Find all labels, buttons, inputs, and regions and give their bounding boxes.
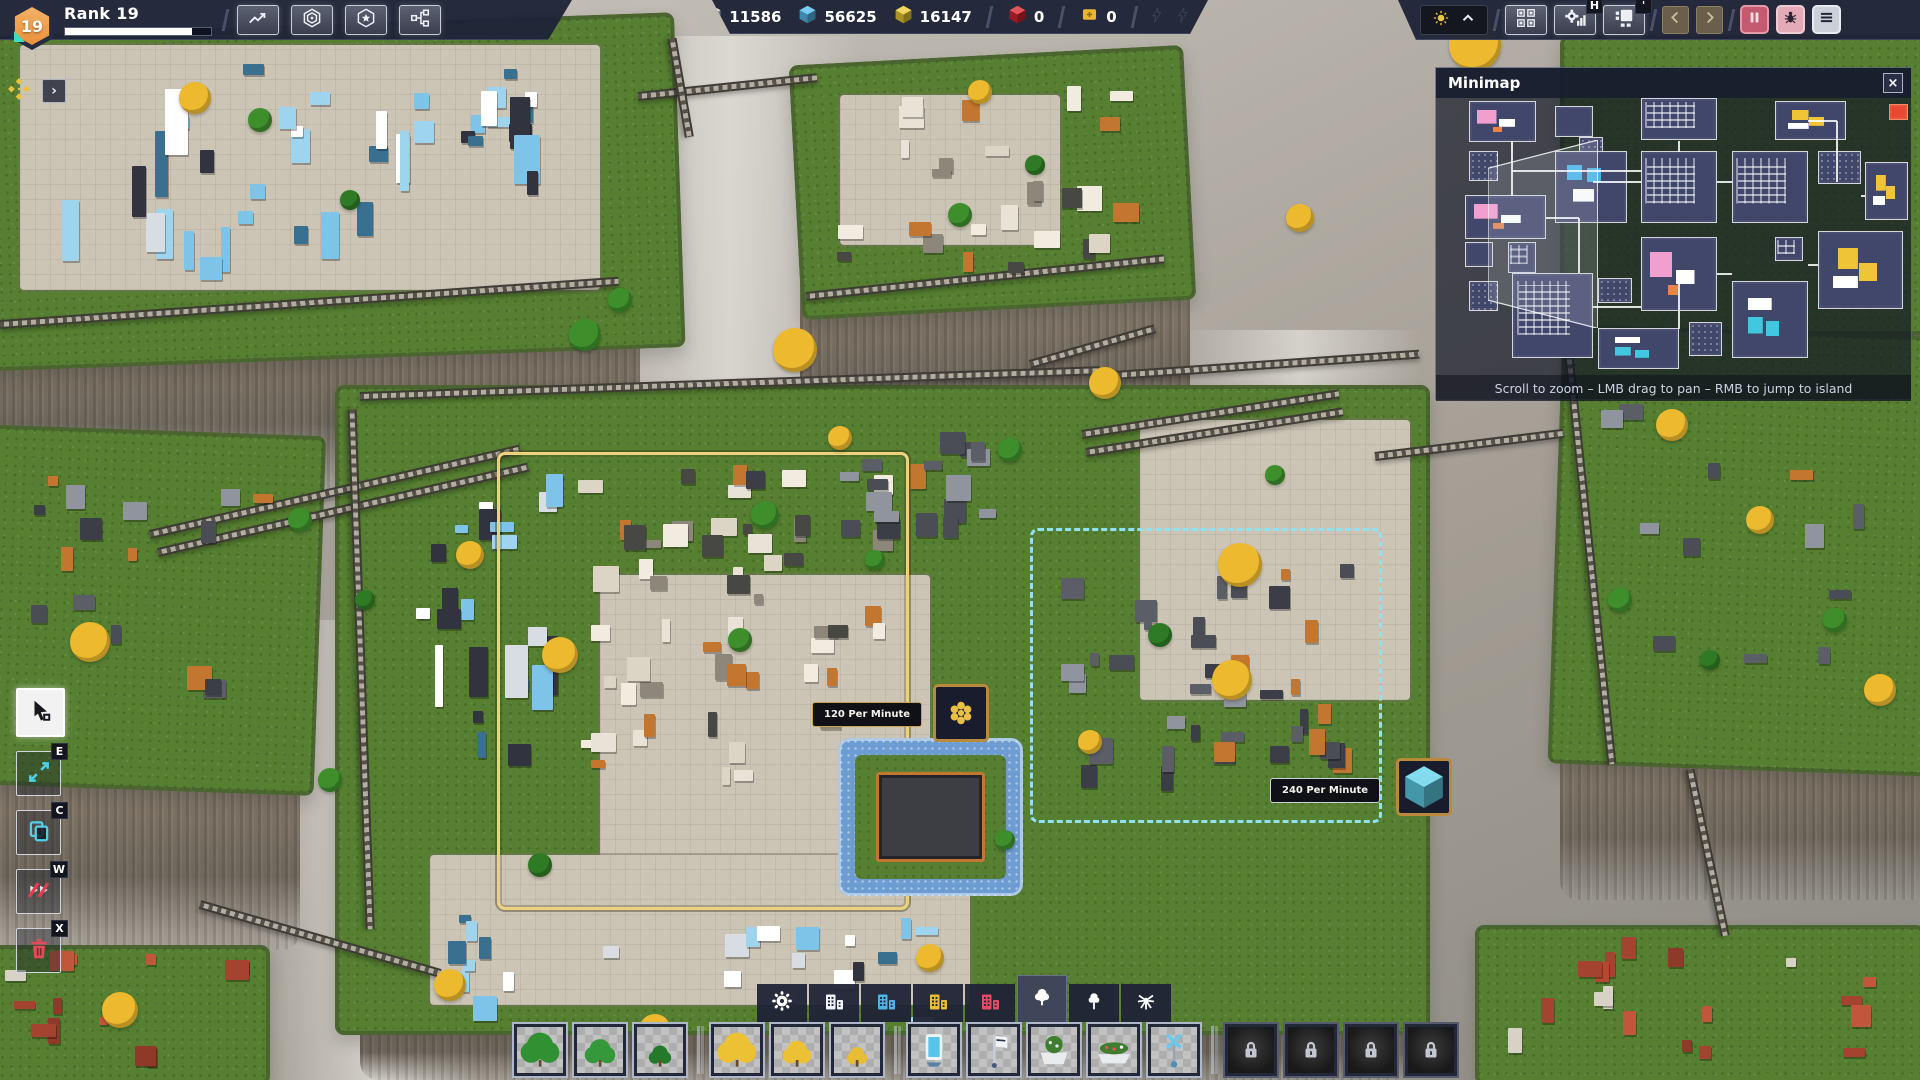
item-tree-green-medium[interactable] [572, 1022, 628, 1078]
slot-preview [1228, 1027, 1274, 1073]
menu-icon [1818, 9, 1835, 30]
pause-button[interactable] [1740, 5, 1769, 34]
factory-building [796, 927, 820, 950]
item-group-divider [894, 1026, 897, 1074]
rank-progress-bar [64, 27, 212, 36]
layer-view-button[interactable]: ' [1603, 5, 1645, 35]
factory-building [1699, 1046, 1711, 1059]
tab-general[interactable] [757, 984, 807, 1022]
minimap-island[interactable] [1598, 328, 1679, 370]
slot-preview [517, 1027, 563, 1073]
tree [456, 541, 484, 569]
game-window: 120 Per Minute240 Per Minute 19 Rank 19 … [0, 0, 1920, 1080]
delete-tool[interactable]: X [16, 928, 61, 973]
factory-building [603, 946, 619, 958]
factory-building [1008, 262, 1023, 273]
tab-buildings-blue[interactable] [861, 984, 911, 1022]
hotkey-badge: E [51, 743, 68, 760]
factory-building [1594, 992, 1612, 1006]
prev-island-button[interactable] [1662, 6, 1689, 34]
factory-building [253, 494, 273, 503]
minimap-island[interactable] [1598, 278, 1631, 303]
edit-toolbar: ECWX [16, 688, 65, 973]
factory-building [1621, 937, 1637, 959]
factory-building [146, 954, 156, 965]
factory-building [1033, 181, 1043, 201]
factory-building [448, 941, 466, 964]
moat-structure [876, 772, 985, 862]
item-locked-2[interactable] [1283, 1022, 1339, 1078]
slot-preview [1348, 1027, 1394, 1073]
tree [528, 853, 552, 877]
tree [1746, 506, 1774, 534]
divider [1493, 9, 1501, 31]
feedback-button[interactable] [1776, 5, 1805, 34]
tree [1608, 588, 1632, 612]
slot-preview [834, 1027, 880, 1073]
tree [1089, 367, 1121, 399]
minimap-island[interactable] [1818, 231, 1904, 309]
select-tool[interactable] [16, 688, 65, 737]
factory-building [1062, 188, 1082, 209]
tree [773, 328, 817, 372]
factory-building [916, 513, 937, 537]
tree [751, 501, 779, 529]
gear-icon [770, 989, 794, 1017]
factory-building [61, 547, 73, 571]
factory-building [1668, 948, 1682, 967]
hotkey-badge: H [1586, 0, 1603, 14]
blueprint-ticket-icon [1079, 4, 1100, 29]
node-graph-icon [409, 7, 431, 33]
buildings-icon [874, 989, 898, 1017]
factory-building [1541, 998, 1555, 1023]
minimap-island[interactable] [1469, 101, 1536, 143]
factory-building [238, 211, 253, 225]
factory-building [1653, 636, 1676, 651]
slash-icon [26, 877, 52, 907]
divider [1728, 9, 1736, 31]
tree [248, 108, 272, 132]
tree [288, 508, 312, 532]
slot-preview [637, 1027, 683, 1073]
throughput-label: 120 Per Minute [812, 702, 922, 727]
minimap-rail-link [1808, 120, 1837, 122]
slot-preview [1151, 1027, 1197, 1073]
tree-icon [1030, 985, 1054, 1013]
slot-preview [714, 1027, 760, 1073]
slot-preview [1031, 1027, 1077, 1073]
tree [728, 628, 752, 652]
factory-building [1841, 996, 1862, 1005]
factory-building [416, 608, 429, 619]
copy-tool[interactable]: C [16, 810, 61, 855]
factory-building [1851, 1005, 1871, 1026]
item-tree-yellow-large[interactable] [709, 1022, 765, 1078]
minimap-rail-link [1593, 306, 1641, 308]
shapes-overview-button[interactable] [291, 5, 333, 35]
divider [986, 6, 994, 28]
minimap-rail-link [1808, 264, 1818, 266]
trend-icon [247, 7, 269, 33]
slot-preview [911, 1027, 957, 1073]
research-button[interactable] [399, 5, 441, 35]
hex-rings-icon [301, 7, 323, 33]
statistics-button[interactable] [237, 5, 279, 35]
buildings-icon [926, 989, 950, 1017]
slot-preview [1091, 1027, 1137, 1073]
expand-pinned-button[interactable]: › [42, 79, 66, 103]
factory-building [48, 476, 58, 486]
throughput-label: 240 Per Minute [1270, 778, 1380, 803]
tree [1078, 730, 1102, 754]
blue-shapes-icon [797, 4, 818, 29]
minimap-island[interactable] [1818, 151, 1861, 184]
layout-icon [1613, 7, 1635, 33]
red-shapes-icon [1007, 4, 1028, 29]
factory-building [1683, 538, 1700, 556]
item-planter[interactable] [1026, 1022, 1082, 1078]
divider [1058, 6, 1066, 28]
next-island-button[interactable] [1696, 6, 1723, 34]
factory-building [279, 107, 295, 129]
rank-progress-group: Rank 19 [64, 4, 214, 36]
factory-building [504, 69, 517, 79]
tree [865, 550, 885, 570]
factory-building [1853, 504, 1864, 528]
factory-building [225, 960, 250, 981]
resource-red-shapes: 0 [1007, 4, 1044, 29]
item-tree-green-large[interactable] [512, 1022, 568, 1078]
factory-building [1829, 590, 1851, 599]
factory-building [73, 595, 94, 610]
tree [179, 82, 211, 114]
hotkey-badge: C [51, 802, 68, 819]
factory-building [943, 517, 958, 538]
item-locked-1[interactable] [1223, 1022, 1279, 1078]
factory-building [376, 111, 386, 149]
factory-building [1508, 1028, 1522, 1053]
factory-building [837, 252, 852, 262]
tab-buildings-red[interactable] [965, 984, 1015, 1022]
resource-blue-shapes: 56625 [797, 4, 876, 29]
factory-building [1708, 463, 1720, 479]
factory-building [838, 225, 863, 239]
tree [340, 190, 360, 210]
slot-preview [1408, 1027, 1454, 1073]
factory-building [878, 952, 897, 965]
factory-building [923, 234, 943, 253]
tab-buildings-yellow[interactable] [913, 984, 963, 1022]
factory-building [909, 222, 930, 235]
item-locked-4[interactable] [1403, 1022, 1459, 1078]
factory-building [971, 442, 985, 461]
factory-building [1067, 86, 1080, 111]
factory-building [985, 146, 1009, 156]
factory-building [310, 92, 330, 104]
hex-star-icon [355, 7, 377, 33]
copy-icon [26, 818, 52, 848]
minimap-rail-link [1678, 274, 1680, 329]
factory-building [146, 213, 165, 253]
factory-building [940, 432, 965, 454]
minimap-island[interactable] [1641, 98, 1717, 140]
tree [1700, 650, 1720, 670]
factory-building [466, 921, 478, 940]
factory-building [724, 971, 741, 987]
tree2-icon [1082, 989, 1106, 1017]
tree [1212, 660, 1252, 700]
factory-building [34, 505, 45, 515]
factory-building [321, 212, 339, 259]
tree [948, 203, 972, 227]
energy-bolt-icon [1148, 5, 1166, 29]
factory-building [442, 588, 459, 609]
minimap-rail-link [1861, 195, 1866, 197]
pinned-shapes-bar: › [6, 76, 66, 106]
tree [569, 319, 601, 351]
production-stats-button[interactable]: H [1554, 5, 1596, 35]
minimap-header: Minimap × [1436, 68, 1911, 98]
minimap-rail-link [1836, 121, 1838, 182]
yellow-shapes-icon [893, 4, 914, 29]
factory-building [200, 150, 214, 172]
factory-building [901, 140, 909, 158]
tree [998, 438, 1022, 462]
minimap-hint: Scroll to zoom – LMB drag to pan – RMB t… [1436, 375, 1911, 401]
rank-label: Rank 19 [64, 4, 214, 23]
move-icon [26, 759, 52, 789]
factory-building [1786, 958, 1796, 968]
factory-building [80, 518, 102, 540]
factory-building [123, 502, 147, 520]
factory-building [757, 926, 779, 941]
factory-building [66, 485, 85, 510]
factory-building [901, 918, 911, 939]
hotkey-badge: X [51, 920, 68, 937]
pause-icon [1746, 9, 1763, 30]
resource-value: 0 [1034, 8, 1044, 26]
gear-bars-icon [1564, 7, 1586, 33]
item-flowerbed[interactable] [1086, 1022, 1142, 1078]
slot-preview [971, 1027, 1017, 1073]
factory-building [477, 732, 486, 758]
factory-building [845, 935, 854, 946]
tree [1823, 608, 1847, 632]
top-bar-resources: 11586566251614700 [712, 0, 1208, 34]
decoration-category-tabs [757, 975, 1171, 1022]
sun-icon [1432, 9, 1450, 31]
factory-building [473, 996, 497, 1020]
hotkey-badge: W [50, 861, 68, 878]
item-locked-3[interactable] [1343, 1022, 1399, 1078]
factory-building [924, 461, 942, 470]
factory-building [1578, 961, 1602, 977]
minimap-island[interactable] [1865, 162, 1908, 220]
resource-value: 16147 [920, 8, 972, 26]
factory-building [979, 509, 997, 518]
factory-building [1601, 410, 1623, 428]
factory-building [963, 252, 974, 272]
factory-building [31, 1024, 56, 1038]
tree [1286, 204, 1314, 232]
tree [102, 992, 138, 1028]
buildings-icon [978, 989, 1002, 1017]
move-tool[interactable]: E [16, 751, 61, 796]
divider [222, 9, 230, 31]
factory-building [435, 645, 443, 707]
minimap-island[interactable] [1775, 237, 1804, 262]
tree [1148, 623, 1172, 647]
factory-building [915, 927, 938, 935]
item-banner[interactable] [966, 1022, 1022, 1078]
factory-building [31, 605, 47, 623]
resource-blueprint-ticket: 0 [1079, 4, 1116, 29]
slot-preview [577, 1027, 623, 1073]
trash-icon [26, 936, 52, 966]
factory-building [414, 121, 434, 143]
energy-bolt-icon [1174, 5, 1192, 29]
buildings-icon [822, 989, 846, 1017]
factory-building [902, 97, 923, 117]
factory-building [221, 227, 230, 271]
factory-building [53, 998, 62, 1014]
factory-building [1623, 1011, 1636, 1035]
minimap-viewport [1488, 140, 1598, 328]
daylight-toggle[interactable] [1420, 5, 1488, 35]
factory-building [479, 937, 492, 960]
item-billboard[interactable] [906, 1022, 962, 1078]
tree [1218, 543, 1262, 587]
minimap-rail-link [1593, 181, 1641, 183]
tab-buildings-white[interactable] [809, 984, 859, 1022]
tab-trees[interactable] [1017, 975, 1067, 1022]
minimap-close-button[interactable]: × [1883, 73, 1903, 93]
tree [542, 637, 578, 673]
factory-building [473, 711, 483, 723]
factory-building [946, 475, 971, 501]
resource-yellow-shapes: 16147 [893, 4, 972, 29]
factory-building [461, 599, 474, 620]
cut-tool[interactable]: W [16, 869, 61, 914]
bug-icon [1782, 9, 1799, 30]
factory-building [62, 200, 79, 262]
factory-building [1682, 1040, 1691, 1052]
tree [355, 590, 375, 610]
minimap-rail-link [1717, 273, 1731, 275]
tree [916, 944, 944, 972]
milestones-button[interactable] [345, 5, 387, 35]
factory-building [437, 609, 460, 629]
item-group-divider [697, 1026, 700, 1074]
factory-building [14, 1001, 35, 1009]
pinned-shape-icon [6, 76, 32, 106]
factory-building [725, 934, 749, 957]
top-bar-left: Rank 19 [0, 0, 572, 40]
item-group-divider [1211, 1026, 1214, 1074]
factory-building [357, 202, 373, 236]
factory-building [400, 131, 409, 192]
factory-building [1843, 1048, 1864, 1057]
minimap-island[interactable] [1641, 151, 1717, 223]
factory-building [792, 953, 805, 968]
resource-value: 56625 [824, 8, 876, 26]
minimap-island[interactable] [1732, 281, 1808, 359]
factory-building [414, 93, 428, 109]
rank-progress-fill [65, 28, 192, 35]
tab-trees-alt[interactable] [1069, 984, 1119, 1022]
minimap-title: Minimap [1448, 74, 1520, 92]
factory-building [971, 224, 987, 235]
minimap-map[interactable] [1436, 98, 1911, 375]
factory-building [932, 169, 951, 178]
slot-preview [774, 1027, 820, 1073]
factory-building [205, 679, 220, 695]
decoration-item-row [512, 1022, 1459, 1078]
factory-building [1702, 1006, 1712, 1023]
platform-icon [1515, 7, 1537, 33]
tree [828, 426, 852, 450]
minimap-rail-link [1678, 141, 1680, 152]
factory-building [201, 521, 216, 543]
cursor-icon [28, 698, 54, 728]
item-tree-yellow-small[interactable] [829, 1022, 885, 1078]
platform-manager-button[interactable] [1505, 5, 1547, 35]
moat-island [838, 738, 1023, 896]
factory-building [1034, 231, 1059, 249]
factory-building [1110, 91, 1133, 101]
factory-building [527, 171, 538, 195]
factory-building [184, 231, 194, 270]
factory-building [243, 64, 264, 75]
factory-building [221, 489, 239, 507]
throughput-shape-icon [933, 684, 989, 742]
factory-building [294, 226, 308, 244]
tab-plants[interactable] [1121, 984, 1171, 1022]
factory-building [200, 257, 223, 280]
minimap-island[interactable] [1889, 104, 1908, 121]
item-tree-green-small[interactable] [632, 1022, 688, 1078]
tree [608, 288, 632, 312]
factory-building [1863, 977, 1876, 987]
factory-building [250, 184, 265, 199]
plant-icon [1134, 989, 1158, 1017]
minimap-rail-link [1717, 181, 1731, 183]
factory-building [111, 625, 121, 644]
chevron-left-icon [1668, 10, 1683, 29]
minimap-island[interactable] [1732, 151, 1808, 223]
divider [1130, 6, 1138, 28]
minimap-island[interactable] [1689, 322, 1722, 355]
rank-badge[interactable]: 19 [8, 2, 56, 50]
throughput-shape-icon [1396, 758, 1452, 816]
factory-building [1744, 654, 1767, 663]
minimap-island[interactable] [1555, 106, 1593, 136]
item-tree-yellow-medium[interactable] [769, 1022, 825, 1078]
item-lamp[interactable] [1146, 1022, 1202, 1078]
menu-button[interactable] [1812, 5, 1841, 34]
factory-building [455, 525, 467, 534]
chevron-right-icon [1702, 10, 1717, 29]
tree [1864, 674, 1896, 706]
tree [318, 768, 342, 792]
resource-value: 11586 [729, 8, 781, 26]
factory-building [469, 647, 487, 696]
factory-building [503, 972, 514, 992]
factory-building [1089, 234, 1110, 253]
minimap-panel: Minimap × Scroll to zoom – LMB drag to p… [1435, 67, 1912, 400]
tree [968, 80, 992, 104]
